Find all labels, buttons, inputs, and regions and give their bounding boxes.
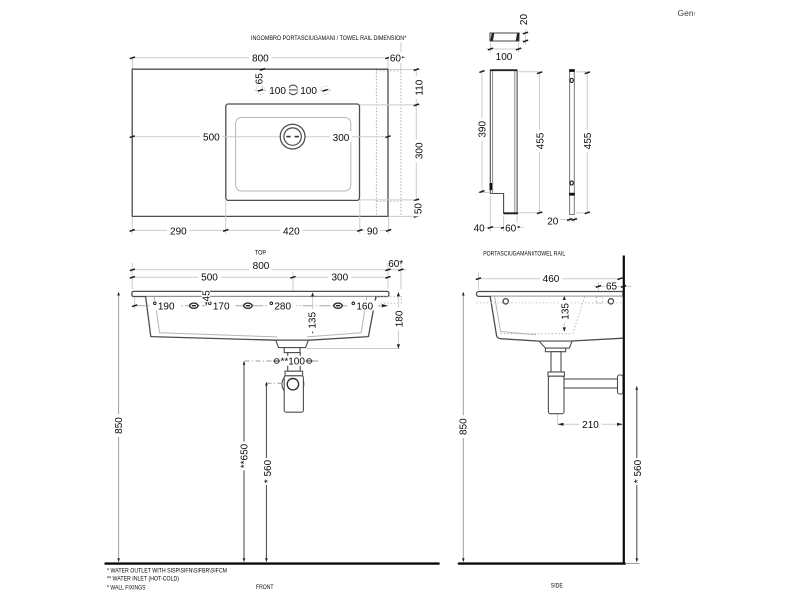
svg-text:* WATER OUTLET WITH SISP\SIFN: * WATER OUTLET WITH SISP\SIFN\SIFBR\SIFC… (107, 567, 227, 574)
svg-text:135: 135 (561, 303, 572, 320)
svg-text:290: 290 (170, 226, 187, 237)
svg-text:300: 300 (331, 273, 348, 284)
svg-text:65: 65 (254, 73, 265, 85)
svg-text:* 560: * 560 (633, 459, 644, 483)
svg-text:180: 180 (395, 310, 406, 327)
svg-text:45: 45 (202, 290, 213, 302)
svg-text:60*: 60* (388, 259, 403, 270)
svg-text:60: 60 (390, 53, 402, 64)
svg-text:110: 110 (414, 79, 425, 95)
svg-text:100: 100 (300, 86, 317, 97)
svg-text:210: 210 (582, 420, 599, 431)
svg-text:TOP: TOP (255, 249, 267, 256)
svg-text:40: 40 (474, 223, 486, 234)
svg-text:300: 300 (333, 133, 350, 144)
svg-text:** WATER INLET (HOT-COLD): ** WATER INLET (HOT-COLD) (107, 576, 179, 583)
svg-text:SIDE: SIDE (551, 583, 563, 590)
svg-text:20: 20 (547, 216, 559, 227)
svg-text:460: 460 (543, 274, 560, 285)
svg-text:800: 800 (252, 54, 269, 65)
svg-text:50: 50 (414, 203, 425, 215)
svg-text:100: 100 (496, 52, 513, 63)
svg-text:420: 420 (283, 226, 300, 237)
svg-text:160: 160 (356, 301, 373, 312)
svg-text:FRONT: FRONT (256, 584, 274, 591)
svg-text:500: 500 (201, 272, 218, 283)
svg-text:* WALL FIXINGS: * WALL FIXINGS (107, 584, 146, 591)
svg-text:850: 850 (114, 417, 125, 434)
svg-text:**100: **100 (280, 356, 305, 367)
svg-text:850: 850 (458, 418, 469, 435)
svg-text:170: 170 (213, 301, 230, 312)
svg-text:* 560: * 560 (263, 459, 274, 483)
svg-text:60: 60 (505, 223, 517, 234)
svg-text:INGOMBRO PORTASCIUGAMANI / TOW: INGOMBRO PORTASCIUGAMANI / TOWEL RAIL DI… (251, 35, 407, 42)
svg-text:PORTASCIUGAMANI/TOWEL RAIL: PORTASCIUGAMANI/TOWEL RAIL (483, 250, 565, 257)
svg-text:90: 90 (367, 226, 379, 237)
svg-text:800: 800 (253, 261, 270, 272)
svg-text:20: 20 (519, 14, 530, 26)
svg-text:500: 500 (203, 133, 220, 144)
svg-text:100: 100 (269, 86, 286, 97)
svg-text:135: 135 (307, 312, 318, 329)
svg-text:280: 280 (274, 301, 291, 312)
svg-text:390: 390 (478, 121, 489, 138)
svg-text:190: 190 (158, 301, 175, 312)
svg-text:455: 455 (535, 132, 546, 149)
svg-text:300: 300 (414, 142, 425, 159)
svg-text:455: 455 (583, 132, 594, 149)
svg-text:**650: **650 (239, 443, 250, 468)
